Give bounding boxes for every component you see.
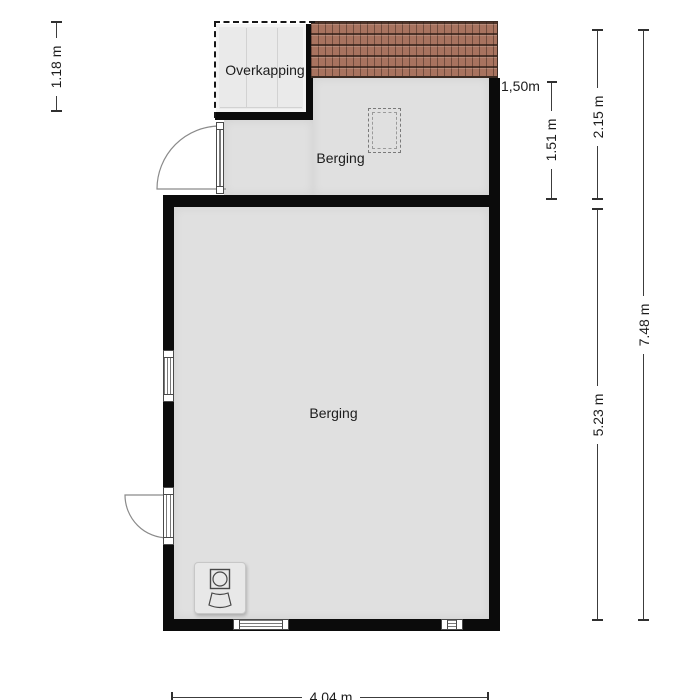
roof-window-dashed (368, 108, 401, 153)
wall-left-upper-segment (163, 195, 174, 350)
dimension-label: 1.51 m (543, 111, 559, 169)
dimension-label: 1.18 m (48, 38, 64, 96)
door-leaf-closed (166, 495, 171, 537)
washing-machine-block (194, 562, 246, 614)
window-bottom-large (233, 619, 289, 630)
door-lower-left-frame (163, 487, 174, 545)
wall-left-lower-segment (163, 545, 174, 631)
dimension-tick (592, 619, 603, 621)
room-label-overkapping: Overkapping (221, 62, 309, 79)
dimension-label: 5.23 m (590, 386, 606, 444)
window-cap (164, 351, 173, 358)
window-cap (164, 394, 173, 401)
door-jamb (164, 537, 173, 544)
room-berging-upper-floor-left (224, 120, 313, 195)
door-jamb (164, 488, 173, 495)
dimension-label: 7.48 m (636, 296, 652, 354)
door-upper-left-frame (216, 122, 224, 194)
window-cap (282, 620, 288, 629)
door-jamb (217, 186, 223, 193)
window-glass (164, 358, 173, 394)
dimension-tick (487, 692, 489, 700)
dimension-tick (171, 692, 173, 700)
dimension-tick (592, 198, 603, 200)
dimension-tick (638, 619, 649, 621)
wall-middle (163, 195, 500, 207)
window-cap (456, 620, 462, 629)
room-label-berging-upper: Berging (312, 150, 369, 167)
floorplan-canvas: Overkapping Berging Berging 1.18 m 1,50m… (0, 0, 700, 700)
room-label-berging-lower: Berging (305, 405, 362, 422)
door-leaf-closed (219, 130, 221, 186)
window-glass (240, 620, 282, 629)
window-left (163, 350, 174, 402)
roof-window-inner (372, 112, 397, 149)
window-bottom-small (441, 619, 463, 630)
dimension-tick (51, 110, 62, 112)
room-berging-upper-floor (313, 78, 489, 195)
dimension-tick (546, 198, 557, 200)
washing-machine-icon (201, 566, 239, 614)
roof-tiles (311, 21, 498, 78)
dimension-label: 4.04 m (302, 689, 360, 700)
wall-left-middle-segment (163, 402, 174, 487)
window-glass (448, 620, 456, 629)
dimension-label: 2.15 m (590, 88, 606, 146)
door-jamb (217, 123, 223, 130)
wall-right (489, 78, 500, 631)
roof-height-line-label: 1,50m (501, 78, 547, 94)
